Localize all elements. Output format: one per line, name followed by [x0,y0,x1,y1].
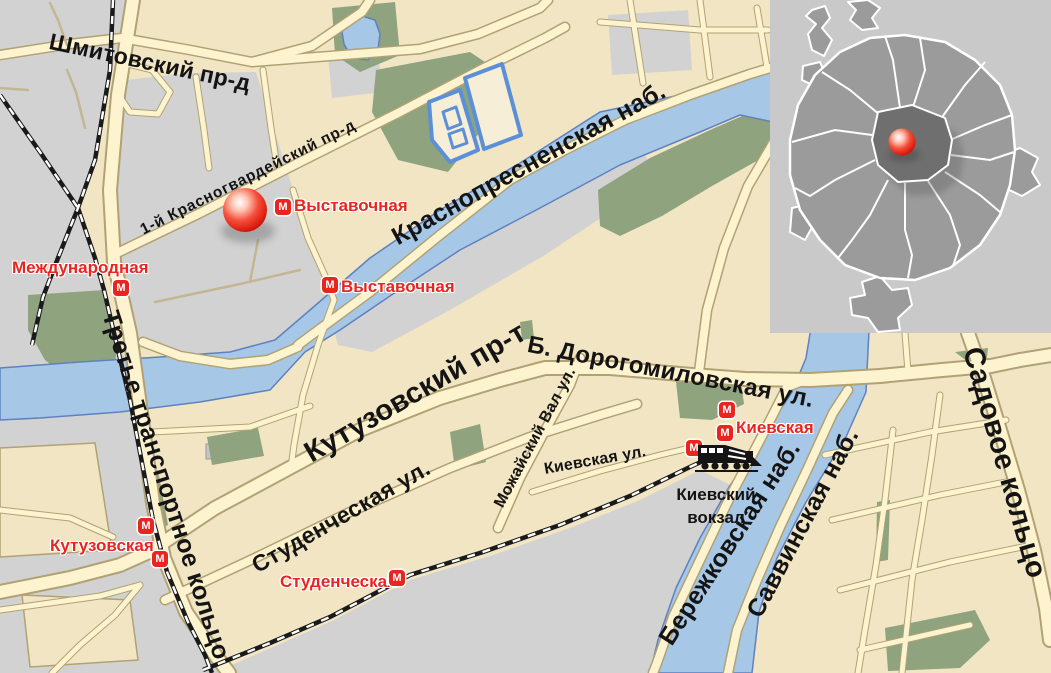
city-map: Шмитовский пр-д 1-й Красногвардейский пр… [0,0,1051,673]
metro-icon: М [389,570,405,586]
metro-label-mezhdunarodnaya: Международная [12,259,149,276]
metro-icon: М [138,518,154,534]
station-label-kievsky-vokzal: Киевский вокзал [650,484,782,530]
metro-icon: М [719,402,735,418]
metro-icon: М [113,280,129,296]
metro-label-vystavochnaya-2: Выставочная [341,278,455,295]
metro-icon: М [275,199,291,215]
inset-map [770,0,1051,333]
metro-icon: М [322,277,338,293]
metro-label-kievskaya: Киевская [736,419,814,436]
metro-label-vystavochnaya-1: Выставочная [294,197,408,214]
train-icon [694,438,768,480]
metro-label-kutuzovskaya: Кутузовская [50,537,154,554]
metro-label-studencheskaya: Студенческая [280,573,397,590]
metro-icon: М [152,551,168,567]
